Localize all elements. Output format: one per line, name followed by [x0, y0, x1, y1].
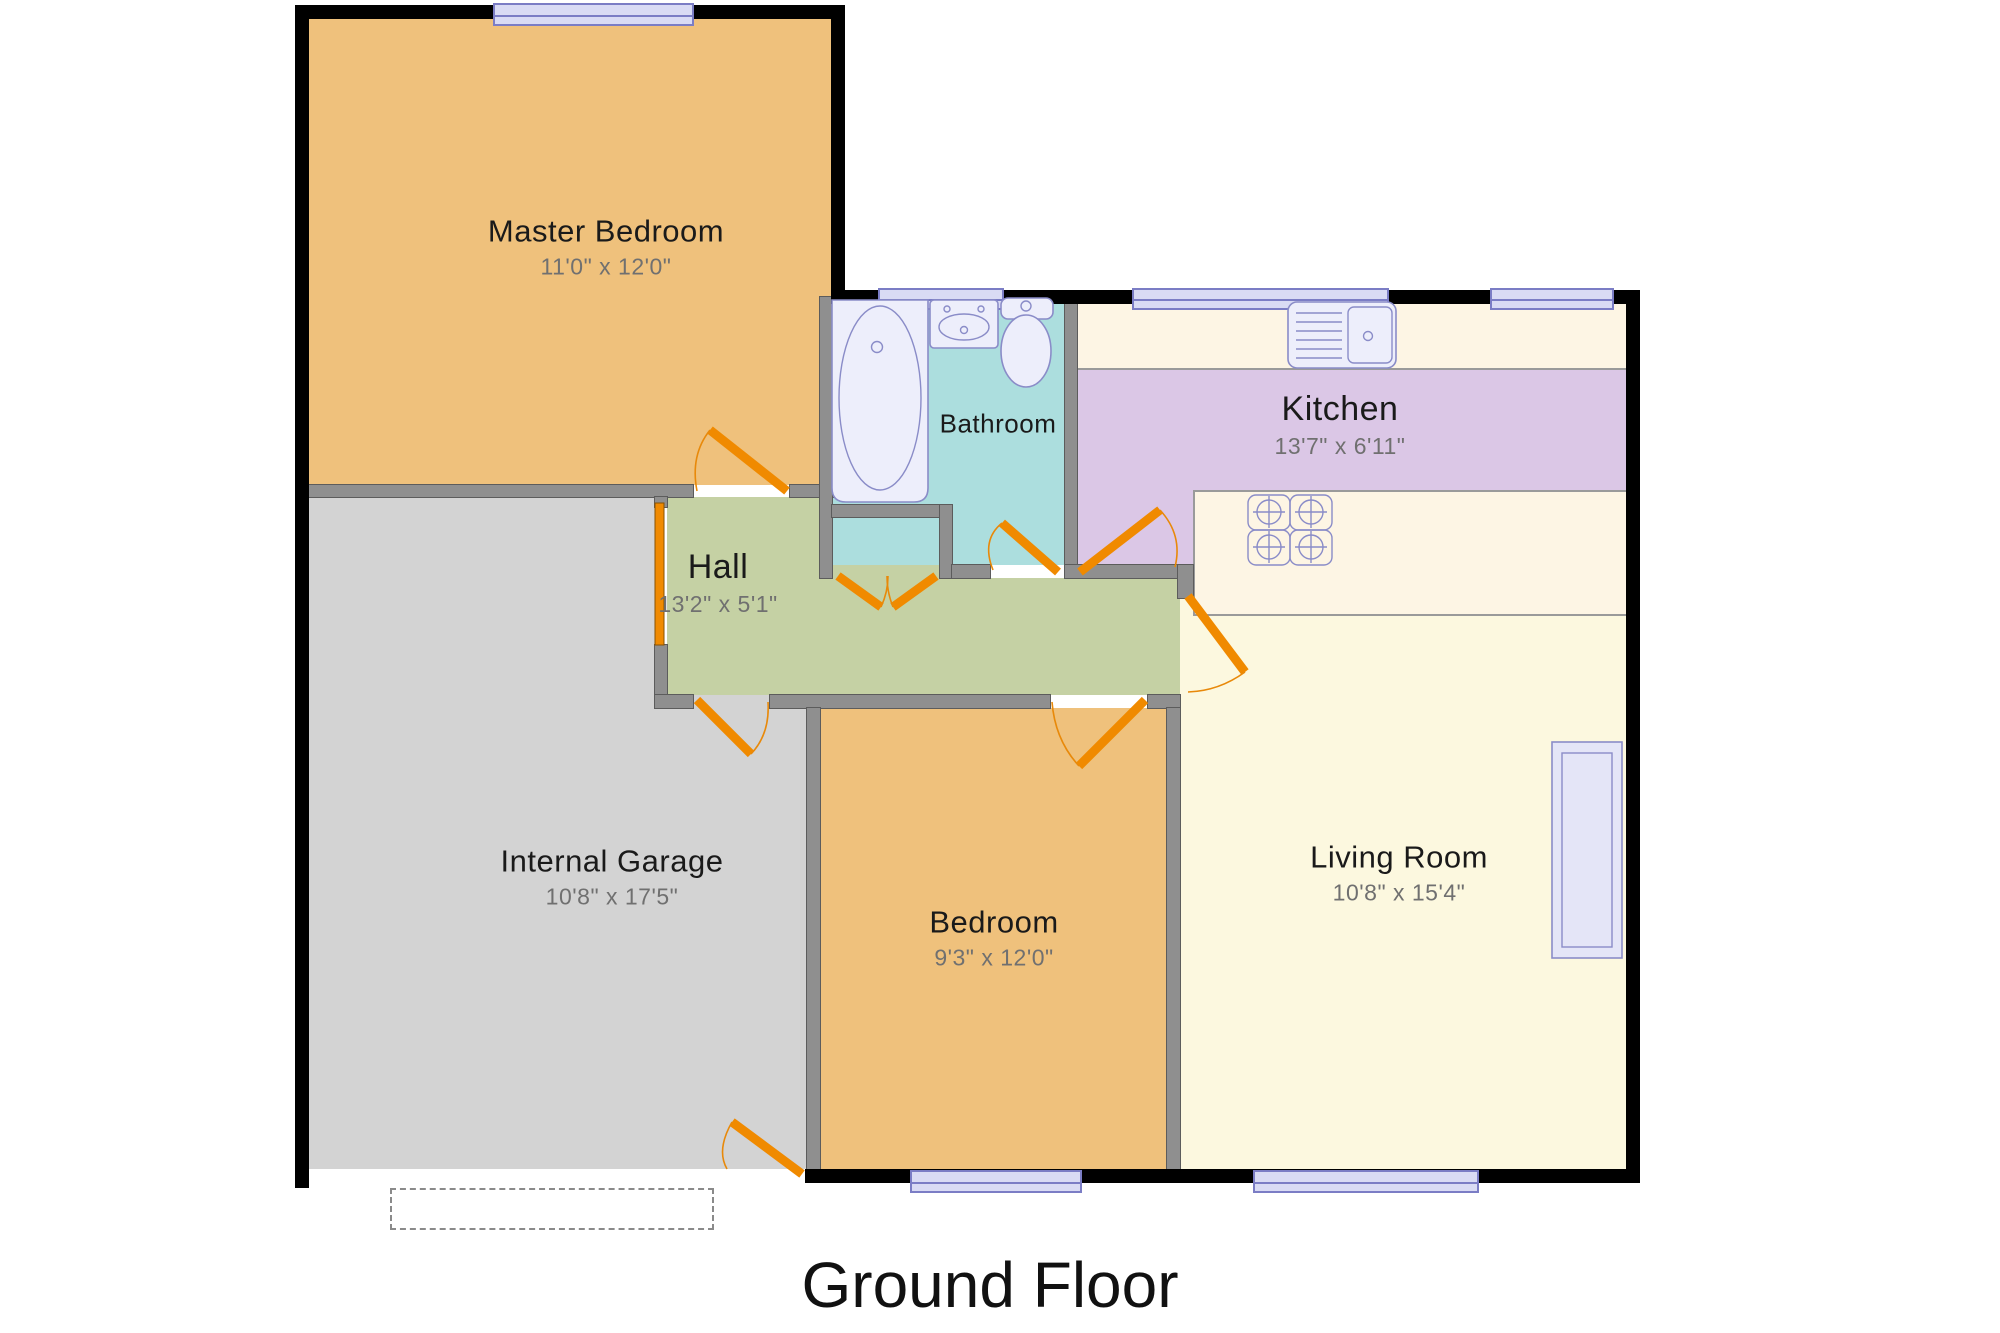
room-label-living-room: Living Room 10'8" x 15'4" [1310, 840, 1488, 907]
room-dims: 10'8" x 17'5" [501, 884, 724, 911]
door-kitchen [1080, 510, 1177, 572]
door-cupboard-bifold [838, 576, 936, 607]
room-name: Hall [658, 548, 777, 587]
room-label-kitchen: Kitchen 13'7" x 6'11" [1275, 390, 1406, 460]
room-name: Kitchen [1275, 390, 1406, 429]
door-bedroom [1052, 700, 1145, 766]
room-dims: 10'8" x 15'4" [1310, 880, 1488, 907]
door-living-room [1188, 596, 1245, 692]
room-label-master-bedroom: Master Bedroom 11'0" x 12'0" [488, 214, 724, 281]
room-name: Bathroom [940, 409, 1057, 440]
floor-plan-page: Master Bedroom 11'0" x 12'0" Bathroom Ki… [0, 0, 2000, 1333]
fireplace-icon [1552, 742, 1622, 958]
room-dims: 11'0" x 12'0" [488, 254, 724, 281]
sink-icon [930, 300, 998, 348]
door-bathroom [989, 523, 1058, 572]
room-dims: 13'7" x 6'11" [1275, 433, 1406, 460]
door-master-bedroom [695, 430, 787, 491]
room-label-hall: Hall 13'2" x 5'1" [658, 548, 777, 618]
room-name: Master Bedroom [488, 214, 724, 250]
room-name: Bedroom [929, 905, 1058, 941]
room-name: Internal Garage [501, 844, 724, 880]
room-dims: 13'2" x 5'1" [658, 591, 777, 618]
room-dims: 9'3" x 12'0" [929, 945, 1058, 972]
kitchen-sink-icon [1288, 302, 1396, 368]
plan-symbols [0, 0, 2000, 1333]
bathtub-icon [832, 300, 928, 502]
door-hall-garage [697, 700, 768, 754]
hob-icon [1248, 495, 1332, 565]
room-label-bathroom: Bathroom [940, 409, 1057, 440]
toilet-icon [1001, 298, 1053, 387]
room-name: Living Room [1310, 840, 1488, 876]
room-label-bedroom: Bedroom 9'3" x 12'0" [929, 905, 1058, 972]
room-label-internal-garage: Internal Garage 10'8" x 17'5" [501, 844, 724, 911]
floor-title: Ground Floor [801, 1248, 1178, 1322]
door-garage-rear [723, 1122, 802, 1174]
